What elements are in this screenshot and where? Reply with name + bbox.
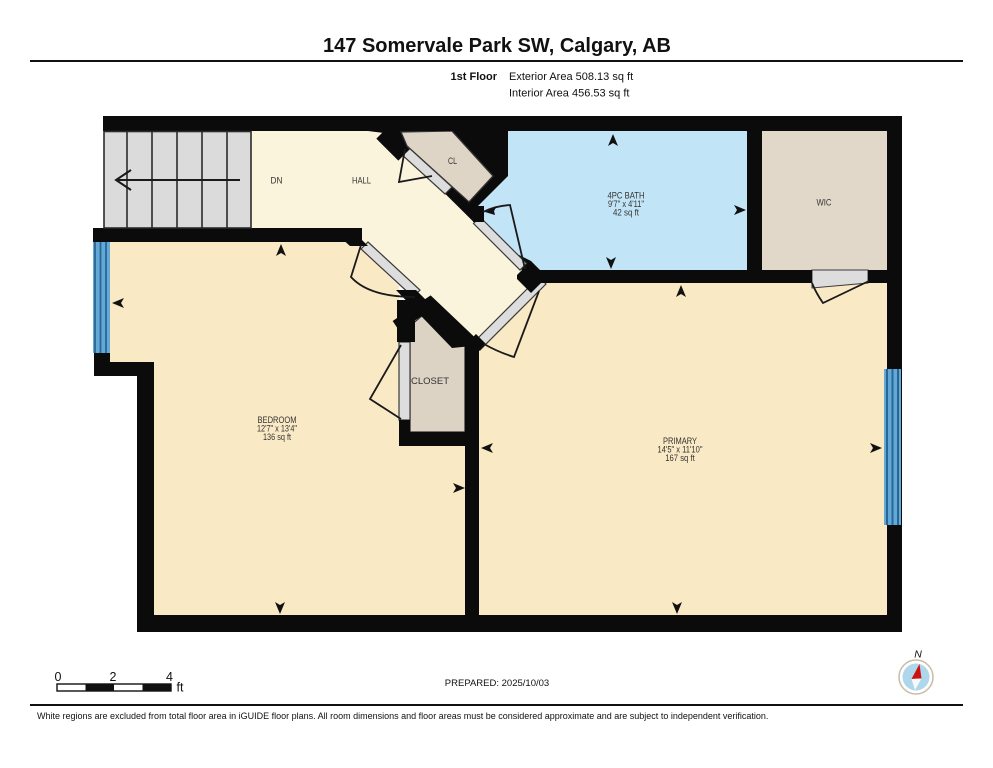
svg-text:147 Somervale Park SW, Calgary: 147 Somervale Park SW, Calgary, AB <box>323 35 671 57</box>
svg-text:PREPARED: 2025/10/03: PREPARED: 2025/10/03 <box>445 678 549 689</box>
svg-text:CL: CL <box>448 156 457 167</box>
svg-text:WIC: WIC <box>817 198 832 209</box>
svg-text:2: 2 <box>110 670 117 684</box>
svg-text:N: N <box>914 649 922 661</box>
svg-text:167 sq ft: 167 sq ft <box>665 453 695 463</box>
svg-text:42 sq ft: 42 sq ft <box>613 207 639 217</box>
svg-text:ft: ft <box>177 681 184 695</box>
svg-text:DN: DN <box>271 176 283 187</box>
svg-text:136 sq ft: 136 sq ft <box>263 432 291 442</box>
svg-text:White regions are excluded fro: White regions are excluded from total fl… <box>37 711 768 721</box>
svg-text:0: 0 <box>55 670 62 684</box>
svg-text:HALL: HALL <box>352 176 371 187</box>
svg-text:Interior Area 456.53 sq ft: Interior Area 456.53 sq ft <box>509 88 629 100</box>
svg-text:CLOSET: CLOSET <box>411 376 449 387</box>
svg-text:4: 4 <box>166 670 173 684</box>
svg-text:Exterior Area 508.13 sq ft: Exterior Area 508.13 sq ft <box>509 71 633 83</box>
svg-text:1st Floor: 1st Floor <box>451 71 498 83</box>
